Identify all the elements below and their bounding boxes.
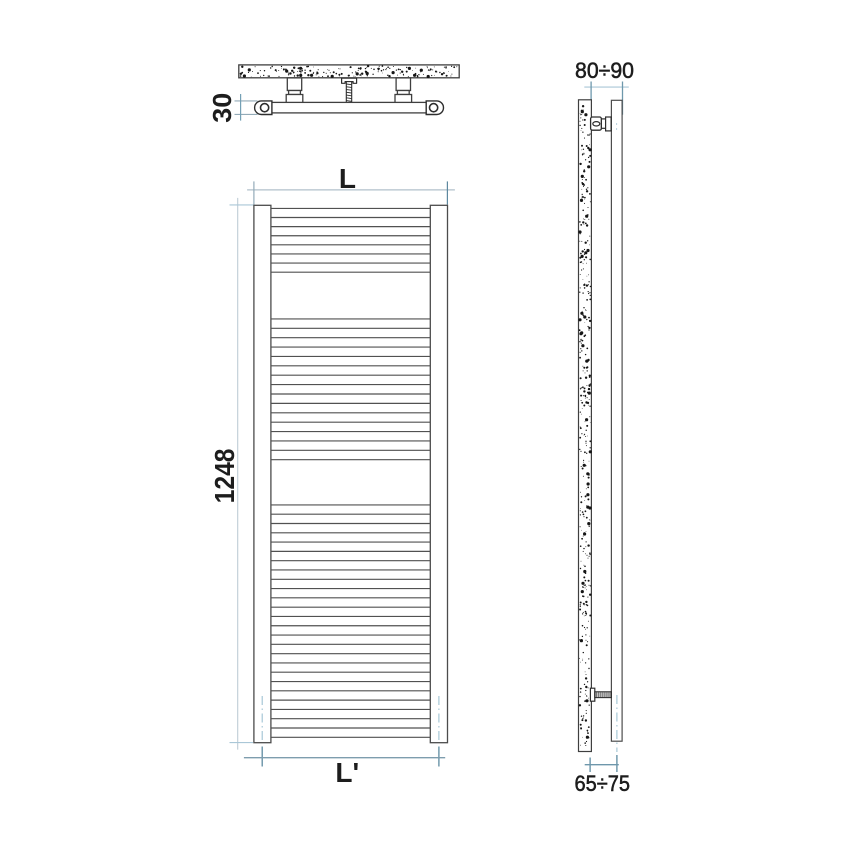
svg-text:L': L' — [335, 757, 359, 788]
svg-text:80÷90: 80÷90 — [575, 58, 634, 83]
svg-text:65÷75: 65÷75 — [575, 771, 631, 796]
svg-text:30: 30 — [209, 93, 237, 123]
svg-text:1248: 1248 — [209, 449, 240, 504]
